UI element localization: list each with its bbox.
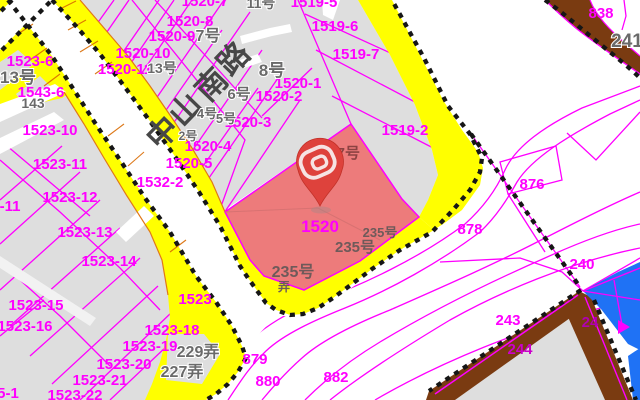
svg-text:1519-5: 1519-5	[291, 0, 338, 11]
svg-text:235号: 235号	[363, 225, 398, 240]
svg-text:1523-22: 1523-22	[47, 387, 102, 400]
svg-text:878: 878	[457, 221, 482, 238]
svg-text:1520-7: 1520-7	[182, 0, 229, 10]
svg-text:838: 838	[588, 5, 613, 22]
svg-text:1523-15: 1523-15	[8, 297, 63, 314]
svg-text:13号: 13号	[147, 60, 177, 76]
svg-text:243: 243	[495, 312, 520, 329]
svg-text:8号: 8号	[259, 61, 285, 80]
svg-text:143: 143	[21, 95, 45, 111]
svg-text:弄: 弄	[278, 280, 290, 294]
svg-text:1523-16: 1523-16	[0, 318, 53, 335]
svg-text:11号: 11号	[247, 0, 276, 11]
svg-text:1520-11: 1520-11	[98, 61, 152, 78]
svg-text:240: 240	[569, 256, 594, 273]
svg-text:1523-10: 1523-10	[22, 122, 77, 139]
svg-text:7号: 7号	[196, 27, 221, 45]
svg-text:1532-2: 1532-2	[137, 174, 184, 191]
svg-text:1520-9: 1520-9	[149, 28, 196, 45]
svg-text:6号: 6号	[227, 86, 250, 103]
svg-text:1519-6: 1519-6	[312, 18, 359, 35]
svg-text:5号: 5号	[216, 111, 236, 126]
svg-text:24: 24	[582, 314, 599, 331]
svg-text:4号: 4号	[197, 106, 217, 121]
svg-text:-11: -11	[0, 198, 20, 215]
svg-text:1523: 1523	[178, 291, 211, 308]
svg-text:1520: 1520	[301, 217, 339, 236]
svg-text:876: 876	[519, 176, 544, 193]
svg-text:1523-18: 1523-18	[144, 322, 199, 339]
svg-text:880: 880	[255, 373, 280, 390]
svg-text:1523-13: 1523-13	[57, 224, 112, 241]
svg-text:1523-12: 1523-12	[42, 189, 97, 206]
svg-text:1520-5: 1520-5	[166, 155, 213, 172]
svg-text:1523-20: 1523-20	[96, 356, 151, 373]
svg-text:1523-11: 1523-11	[33, 156, 87, 173]
svg-text:2号: 2号	[179, 128, 198, 143]
svg-text:235号: 235号	[335, 239, 375, 256]
svg-text:1523-14: 1523-14	[81, 253, 137, 270]
svg-text:244: 244	[507, 341, 533, 358]
svg-text:1519-2: 1519-2	[382, 122, 429, 139]
svg-text:227弄: 227弄	[161, 363, 204, 381]
svg-text:1520-2: 1520-2	[256, 88, 303, 105]
svg-text:879: 879	[242, 351, 267, 368]
svg-text:1523-19: 1523-19	[122, 338, 177, 355]
svg-text:13号: 13号	[0, 68, 36, 87]
svg-text:235号: 235号	[272, 263, 315, 281]
svg-text:882: 882	[323, 369, 348, 386]
svg-text:229弄: 229弄	[177, 343, 220, 361]
svg-text:5-1: 5-1	[0, 385, 19, 400]
svg-text:1519-7: 1519-7	[333, 46, 380, 63]
svg-text:241: 241	[611, 31, 640, 52]
